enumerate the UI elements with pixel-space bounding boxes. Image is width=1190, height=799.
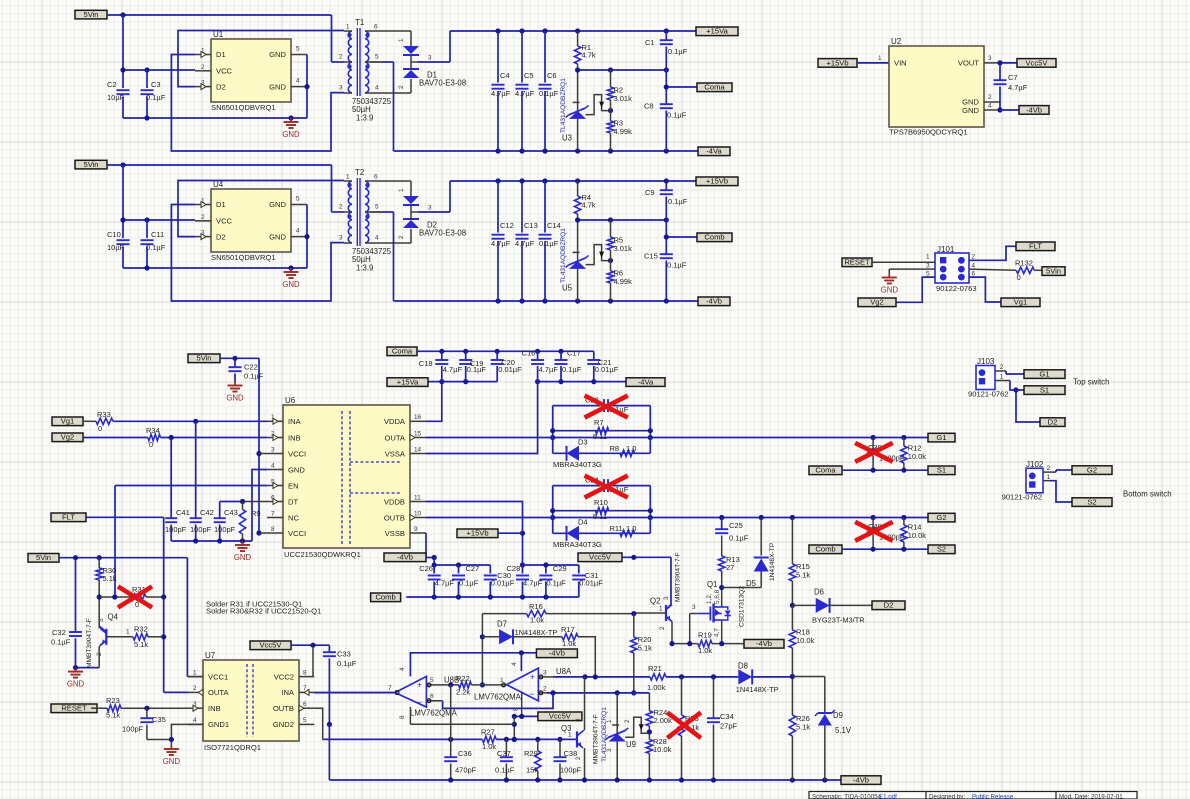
svg-text:4: 4 — [375, 85, 379, 92]
svg-text:Vcc5V: Vcc5V — [1026, 58, 1049, 67]
svg-text:4.7µF: 4.7µF — [435, 579, 455, 588]
svg-text:Comb: Comb — [815, 545, 835, 554]
svg-text:VCC2: VCC2 — [274, 672, 294, 681]
svg-text:VCC1: VCC1 — [208, 672, 228, 681]
svg-text:C2: C2 — [107, 80, 117, 89]
svg-text:C35: C35 — [152, 715, 166, 724]
svg-text:Vg1: Vg1 — [1014, 298, 1028, 307]
svg-text:2: 2 — [96, 652, 103, 656]
svg-text:D6: D6 — [814, 588, 824, 597]
svg-text:2.2k: 2.2k — [456, 688, 470, 697]
svg-text:0.1µF: 0.1µF — [668, 47, 688, 56]
svg-text:1: 1 — [1000, 374, 1004, 381]
svg-text:-4Va: -4Va — [638, 378, 654, 387]
svg-text:2: 2 — [1000, 364, 1004, 371]
svg-text:1.0: 1.0 — [626, 444, 636, 453]
svg-text:0.1µF: 0.1µF — [729, 534, 749, 543]
svg-text:1:3.9: 1:3.9 — [356, 264, 373, 273]
svg-text:4: 4 — [271, 462, 275, 469]
svg-text:0.1µF: 0.1µF — [51, 638, 71, 647]
svg-text:6: 6 — [303, 701, 307, 708]
svg-text:5Vin: 5Vin — [83, 10, 98, 19]
svg-text:Public Release: Public Release — [972, 794, 1014, 799]
svg-text:G2: G2 — [1087, 466, 1097, 475]
svg-text:0: 0 — [1017, 273, 1021, 282]
svg-text:C11: C11 — [151, 230, 164, 239]
svg-text:5Vin: 5Vin — [1046, 267, 1061, 276]
svg-text:U9: U9 — [626, 740, 636, 749]
svg-text:R17: R17 — [561, 625, 575, 634]
svg-text:G1: G1 — [1039, 370, 1049, 379]
svg-text:4: 4 — [511, 662, 518, 666]
svg-text:U3: U3 — [562, 134, 572, 143]
svg-text:R7: R7 — [594, 418, 604, 427]
svg-text:1: 1 — [926, 254, 930, 261]
svg-text:3: 3 — [339, 85, 343, 92]
svg-text:VCCI: VCCI — [288, 529, 306, 538]
svg-text:4: 4 — [399, 667, 406, 671]
svg-text:Vg1: Vg1 — [61, 417, 75, 426]
svg-text:5,6,8: 5,6,8 — [714, 589, 721, 604]
svg-text:1: 1 — [659, 606, 663, 613]
svg-text:FLT: FLT — [1029, 242, 1042, 251]
svg-text:2: 2 — [398, 235, 405, 239]
svg-text:5.1k: 5.1k — [103, 574, 117, 583]
svg-text:+15Vb: +15Vb — [706, 177, 728, 186]
svg-text:0.1µF: 0.1µF — [667, 111, 687, 120]
svg-text:Comb: Comb — [704, 233, 724, 242]
svg-text:R132: R132 — [1015, 258, 1033, 267]
svg-text:11: 11 — [414, 494, 421, 501]
svg-text:2: 2 — [543, 686, 547, 693]
svg-text:C13: C13 — [524, 221, 538, 230]
svg-text:ISO7721QDRQ1: ISO7721QDRQ1 — [204, 743, 261, 752]
svg-text:-4Vb: -4Vb — [853, 776, 869, 785]
svg-text:G1: G1 — [936, 433, 946, 442]
svg-text:5Vin: 5Vin — [36, 553, 51, 562]
svg-text:-4Vb: -4Vb — [397, 553, 413, 562]
svg-text:FLT: FLT — [62, 513, 75, 522]
svg-text:D1: D1 — [216, 200, 226, 209]
svg-text:3.01k: 3.01k — [614, 94, 633, 103]
svg-text:1: 1 — [193, 669, 197, 676]
svg-text:R22: R22 — [456, 674, 470, 683]
svg-text:U5: U5 — [562, 284, 573, 293]
svg-text:GND: GND — [269, 233, 286, 242]
svg-text:GND: GND — [269, 83, 286, 92]
svg-text:0.01µF: 0.01µF — [498, 365, 522, 374]
svg-text:C33: C33 — [337, 650, 351, 659]
svg-text:C10: C10 — [107, 230, 121, 239]
svg-text:Coma: Coma — [815, 466, 836, 475]
svg-text:+15Vb: +15Vb — [466, 529, 488, 538]
svg-text:UCC21530QDWKRQ1: UCC21530QDWKRQ1 — [284, 550, 361, 559]
svg-text:LMV762QMA: LMV762QMA — [474, 693, 522, 702]
svg-text:2: 2 — [398, 85, 405, 89]
svg-text:4.7µF: 4.7µF — [491, 89, 511, 98]
svg-text:+15Va: +15Va — [706, 27, 728, 36]
svg-text:C41: C41 — [176, 508, 190, 517]
svg-text:Vg2: Vg2 — [870, 298, 884, 307]
svg-text:OUTB: OUTB — [273, 704, 294, 713]
svg-text:R16: R16 — [529, 602, 543, 611]
svg-text:4.7k: 4.7k — [582, 51, 596, 60]
svg-text:GND: GND — [962, 106, 979, 115]
svg-text:3: 3 — [428, 205, 432, 212]
svg-text:MMBT3904T-7-F: MMBT3904T-7-F — [593, 714, 600, 764]
svg-text:C6: C6 — [547, 71, 557, 80]
svg-text:4.7µF: 4.7µF — [443, 365, 463, 374]
svg-text:T1: T1 — [355, 18, 365, 27]
svg-text:Vcc5V: Vcc5V — [260, 641, 283, 650]
svg-text:0.1µF: 0.1µF — [467, 365, 487, 374]
svg-text:-4Vb: -4Vb — [549, 649, 565, 658]
svg-text:27: 27 — [726, 563, 734, 572]
svg-text:4.7µF: 4.7µF — [515, 239, 535, 248]
svg-text:INA: INA — [288, 417, 302, 426]
svg-text:14: 14 — [414, 446, 422, 453]
svg-text:R32: R32 — [134, 625, 148, 634]
svg-text:8: 8 — [399, 715, 406, 719]
svg-text:BYG23T-M3/TR: BYG23T-M3/TR — [812, 616, 865, 625]
svg-text:3: 3 — [988, 55, 992, 62]
svg-text:3.01k: 3.01k — [614, 244, 633, 253]
svg-text:C26: C26 — [419, 564, 433, 573]
svg-text:0.01µF: 0.01µF — [491, 579, 515, 588]
svg-text:C29: C29 — [553, 564, 567, 573]
svg-text:2: 2 — [624, 719, 631, 723]
svg-text:C32: C32 — [52, 628, 66, 637]
svg-text:VDDA: VDDA — [384, 417, 406, 426]
svg-text:OUTA: OUTA — [208, 688, 229, 697]
svg-text:INB: INB — [288, 433, 301, 442]
svg-text:VSSB: VSSB — [385, 529, 405, 538]
svg-text:-4Va: -4Va — [706, 147, 722, 156]
svg-text:S1: S1 — [1040, 386, 1049, 395]
svg-text:8: 8 — [271, 526, 275, 533]
svg-text:0: 0 — [149, 440, 153, 449]
svg-text:VIN: VIN — [894, 59, 907, 68]
svg-text:D3: D3 — [578, 437, 588, 446]
svg-text:10µF: 10µF — [107, 93, 125, 102]
svg-text:VCC: VCC — [216, 67, 233, 76]
svg-text:1.0: 1.0 — [626, 524, 636, 533]
svg-text:1: 1 — [568, 732, 572, 739]
svg-text:100pF: 100pF — [190, 525, 212, 534]
svg-text:D2: D2 — [884, 601, 894, 610]
svg-text:D2: D2 — [216, 83, 226, 92]
svg-text:1.0k: 1.0k — [698, 646, 712, 655]
svg-text:-4Vb: -4Vb — [1026, 105, 1042, 114]
svg-text:S1: S1 — [937, 466, 946, 475]
svg-text:1: 1 — [606, 719, 613, 723]
svg-text:3: 3 — [543, 670, 547, 677]
svg-text:−: − — [529, 689, 534, 699]
svg-text:10.0k: 10.0k — [908, 452, 927, 461]
svg-text:MMBT3904T-7-F: MMBT3904T-7-F — [675, 552, 682, 602]
svg-text:Vcc5V: Vcc5V — [549, 712, 572, 721]
svg-text:GND2: GND2 — [273, 720, 294, 729]
svg-text:100pF: 100pF — [214, 525, 236, 534]
svg-text:0: 0 — [98, 424, 102, 433]
svg-text:8: 8 — [513, 707, 520, 711]
svg-text:GND: GND — [288, 465, 305, 474]
svg-text:4.7µF: 4.7µF — [515, 89, 535, 98]
svg-text:C12: C12 — [500, 221, 514, 230]
svg-text:D5: D5 — [746, 579, 757, 588]
svg-text:-4Vb: -4Vb — [756, 639, 772, 648]
svg-text:C5: C5 — [524, 71, 534, 80]
svg-text:GND: GND — [234, 553, 252, 562]
svg-text:5.1k: 5.1k — [796, 571, 810, 580]
svg-text:C9: C9 — [645, 188, 655, 197]
svg-text:T2: T2 — [355, 168, 365, 177]
svg-text:GND: GND — [282, 280, 300, 289]
svg-text:0.1µF: 0.1µF — [459, 579, 479, 588]
svg-text:5: 5 — [296, 46, 300, 53]
svg-text:-4Vb: -4Vb — [706, 297, 722, 306]
svg-text:D8: D8 — [738, 662, 748, 671]
svg-text:1N4148X-TP: 1N4148X-TP — [515, 628, 558, 637]
svg-text:0.1µF: 0.1µF — [546, 579, 566, 588]
svg-text:U7: U7 — [205, 651, 216, 660]
svg-text:R10: R10 — [594, 498, 608, 507]
svg-text:15: 15 — [414, 430, 422, 437]
svg-text:R34: R34 — [146, 426, 160, 435]
svg-text:Q2: Q2 — [650, 597, 660, 606]
svg-text:4.99k: 4.99k — [614, 277, 633, 286]
svg-text:C37: C37 — [497, 749, 511, 758]
svg-text:7: 7 — [388, 685, 392, 692]
svg-text:5.1V: 5.1V — [835, 726, 852, 735]
svg-text:−: − — [417, 697, 422, 707]
svg-text:C15: C15 — [644, 252, 658, 261]
svg-text:15k: 15k — [526, 766, 538, 775]
svg-text:4.7µF: 4.7µF — [491, 239, 511, 248]
svg-text:C22: C22 — [244, 363, 258, 372]
svg-text:10.0k: 10.0k — [908, 531, 927, 540]
svg-text:2: 2 — [339, 54, 343, 61]
svg-text:VSSA: VSSA — [385, 449, 406, 458]
svg-text:2: 2 — [988, 94, 992, 101]
svg-text:3: 3 — [575, 718, 582, 722]
svg-text:2.00k: 2.00k — [654, 716, 673, 725]
svg-text:90121-0762: 90121-0762 — [968, 390, 1009, 399]
svg-text:3: 3 — [271, 446, 275, 453]
svg-text:GND: GND — [282, 130, 300, 139]
svg-text:2: 2 — [193, 685, 197, 692]
svg-text:C42: C42 — [200, 508, 214, 517]
svg-text:10µF: 10µF — [107, 243, 125, 252]
svg-text:D9: D9 — [833, 711, 843, 720]
svg-text:Solder R30&R32 if UCC21520-Q1: Solder R30&R32 if UCC21520-Q1 — [206, 607, 321, 616]
svg-text:VCC: VCC — [216, 217, 233, 226]
svg-text:D7: D7 — [497, 620, 507, 629]
svg-text:0.1µF: 0.1µF — [495, 766, 515, 775]
svg-text:TPS7B6950QDCYRQ1: TPS7B6950QDCYRQ1 — [889, 128, 968, 137]
svg-text:MBRA340T3G: MBRA340T3G — [553, 460, 602, 469]
svg-text:+15Va: +15Va — [397, 378, 419, 387]
svg-text:4.7µF: 4.7µF — [539, 365, 559, 374]
svg-text:Q4: Q4 — [108, 613, 119, 622]
svg-text:8: 8 — [303, 669, 307, 676]
svg-text:5: 5 — [296, 196, 300, 203]
svg-text:C7: C7 — [1008, 73, 1018, 82]
svg-text:C1: C1 — [645, 38, 655, 47]
svg-text:5.1k: 5.1k — [638, 644, 652, 653]
svg-text:TL431AQDBZRQ1: TL431AQDBZRQ1 — [560, 228, 567, 283]
svg-text:10.0k: 10.0k — [653, 745, 672, 754]
svg-text:GND: GND — [269, 200, 286, 209]
svg-text:E1.pdf: E1.pdf — [879, 794, 897, 799]
svg-text:1N4148X-TP: 1N4148X-TP — [736, 685, 779, 694]
svg-text:C43: C43 — [224, 508, 238, 517]
svg-text:Top switch: Top switch — [1073, 378, 1109, 387]
svg-text:GND: GND — [163, 757, 181, 766]
svg-text:VCCI: VCCI — [288, 449, 306, 458]
svg-text:2: 2 — [201, 214, 205, 221]
svg-text:1: 1 — [346, 174, 350, 181]
svg-text:+15Vb: +15Vb — [826, 58, 848, 67]
svg-text:2: 2 — [659, 626, 666, 630]
svg-text:Schematic: TIDA-010054: Schematic: TIDA-010054 — [812, 794, 882, 799]
svg-text:C17: C17 — [567, 348, 581, 357]
svg-text:C27: C27 — [466, 564, 480, 573]
svg-text:1: 1 — [398, 38, 405, 42]
svg-text:MMBT3904T-7-F: MMBT3904T-7-F — [86, 618, 93, 668]
svg-text:Coma: Coma — [392, 347, 413, 356]
svg-text:5: 5 — [375, 204, 379, 211]
svg-text:6: 6 — [374, 24, 378, 31]
svg-text:100pF: 100pF — [165, 525, 187, 534]
svg-text:C36: C36 — [458, 749, 472, 758]
svg-text:2: 2 — [339, 204, 343, 211]
svg-text:90122-0763: 90122-0763 — [936, 284, 977, 293]
svg-text:BAV70-E3-08: BAV70-E3-08 — [419, 229, 466, 238]
svg-text:0.1µF: 0.1µF — [667, 261, 687, 270]
svg-text:5.1k: 5.1k — [134, 640, 148, 649]
svg-text:C28: C28 — [507, 564, 521, 573]
svg-text:INA: INA — [281, 688, 295, 697]
svg-text:2: 2 — [201, 64, 205, 71]
svg-text:NC: NC — [288, 513, 299, 522]
svg-text:0.1µF: 0.1µF — [337, 659, 357, 668]
svg-text:1: 1 — [398, 188, 405, 192]
svg-text:C16: C16 — [522, 348, 536, 357]
svg-text:0.1µF: 0.1µF — [562, 365, 582, 374]
svg-text:2: 2 — [1047, 465, 1051, 472]
svg-text:3: 3 — [663, 596, 670, 600]
svg-text:RESET: RESET — [844, 258, 870, 267]
svg-text:GND: GND — [881, 286, 899, 295]
svg-text:C14: C14 — [547, 221, 561, 230]
svg-text:100pF: 100pF — [122, 725, 144, 734]
svg-text:R19: R19 — [698, 631, 712, 640]
svg-text:Bottom switch: Bottom switch — [1123, 490, 1172, 499]
svg-text:3: 3 — [692, 604, 696, 611]
svg-text:1: 1 — [878, 55, 882, 62]
svg-text:S2: S2 — [1087, 498, 1096, 507]
svg-text:SN6501QDBVRQ1: SN6501QDBVRQ1 — [211, 253, 276, 262]
svg-text:3: 3 — [98, 618, 105, 622]
svg-text:3: 3 — [428, 55, 432, 62]
svg-text:4: 4 — [193, 717, 197, 724]
svg-text:GND1: GND1 — [208, 720, 229, 729]
svg-text:C3: C3 — [151, 80, 161, 89]
svg-text:10: 10 — [414, 510, 422, 517]
svg-text:4: 4 — [296, 228, 300, 235]
svg-text:1.00k: 1.00k — [647, 683, 666, 692]
svg-text:SN6501QDBVRQ1: SN6501QDBVRQ1 — [211, 103, 276, 112]
svg-text:BAV70-E3-08: BAV70-E3-08 — [419, 79, 466, 88]
svg-text:Comb: Comb — [375, 593, 395, 602]
svg-text:D4: D4 — [578, 517, 588, 526]
svg-text:GND: GND — [67, 680, 85, 689]
svg-text:27pF: 27pF — [720, 722, 738, 731]
svg-text:4: 4 — [296, 78, 300, 85]
svg-text:1: 1 — [126, 629, 130, 636]
svg-text:0.1µF: 0.1µF — [244, 372, 264, 381]
svg-text:0.1µF: 0.1µF — [146, 243, 166, 252]
svg-text:7: 7 — [271, 510, 275, 517]
svg-text:C18: C18 — [419, 359, 433, 368]
svg-text:5Vin: 5Vin — [83, 160, 98, 169]
svg-text:3: 3 — [339, 235, 343, 242]
svg-text:5: 5 — [375, 54, 379, 61]
svg-text:0.01µF: 0.01µF — [579, 579, 603, 588]
svg-text:0.01µF: 0.01µF — [595, 365, 619, 374]
svg-text:90121-0762: 90121-0762 — [1002, 493, 1043, 502]
svg-text:C4: C4 — [500, 71, 510, 80]
svg-text:GND: GND — [226, 394, 244, 403]
svg-text:4.7µF: 4.7µF — [1008, 83, 1028, 92]
svg-text:D2: D2 — [216, 233, 226, 242]
svg-text:5.11: 5.11 — [593, 512, 607, 521]
svg-text:EN: EN — [288, 481, 299, 490]
svg-text:1.0k: 1.0k — [530, 616, 544, 625]
svg-text:5Vin: 5Vin — [196, 354, 211, 363]
svg-text:Q1: Q1 — [707, 580, 717, 589]
svg-text:16: 16 — [414, 414, 422, 421]
svg-text:+: + — [530, 672, 535, 682]
svg-text:DT: DT — [288, 497, 298, 506]
svg-text:6: 6 — [374, 174, 378, 181]
svg-text:1,2,: 1,2, — [706, 593, 713, 604]
svg-text:1N4148X-TP: 1N4148X-TP — [769, 542, 776, 581]
svg-text:4.99k: 4.99k — [614, 127, 633, 136]
svg-text:C34: C34 — [720, 712, 734, 721]
svg-text:1: 1 — [346, 24, 350, 31]
svg-text:VDDB: VDDB — [384, 497, 405, 506]
svg-text:R8: R8 — [610, 444, 620, 453]
svg-text:R11: R11 — [610, 524, 623, 533]
svg-text:100pF: 100pF — [560, 766, 582, 775]
svg-text:4: 4 — [988, 103, 992, 110]
svg-text:0.1µF: 0.1µF — [539, 239, 559, 248]
svg-text:CSD17313Q2: CSD17313Q2 — [739, 586, 746, 627]
svg-text:TL431AQDBZRQ1: TL431AQDBZRQ1 — [601, 707, 608, 762]
svg-text:J103: J103 — [977, 357, 995, 366]
svg-text:4.7k: 4.7k — [582, 201, 596, 210]
svg-text:D2: D2 — [1048, 418, 1058, 427]
svg-text:+: + — [417, 680, 422, 690]
svg-text:R27: R27 — [481, 728, 495, 737]
svg-text:2: 2 — [575, 756, 582, 760]
svg-text:OUTA: OUTA — [384, 433, 405, 442]
svg-text:U6: U6 — [285, 396, 296, 405]
svg-text:4,7: 4,7 — [714, 628, 721, 637]
svg-text:INB: INB — [208, 704, 221, 713]
